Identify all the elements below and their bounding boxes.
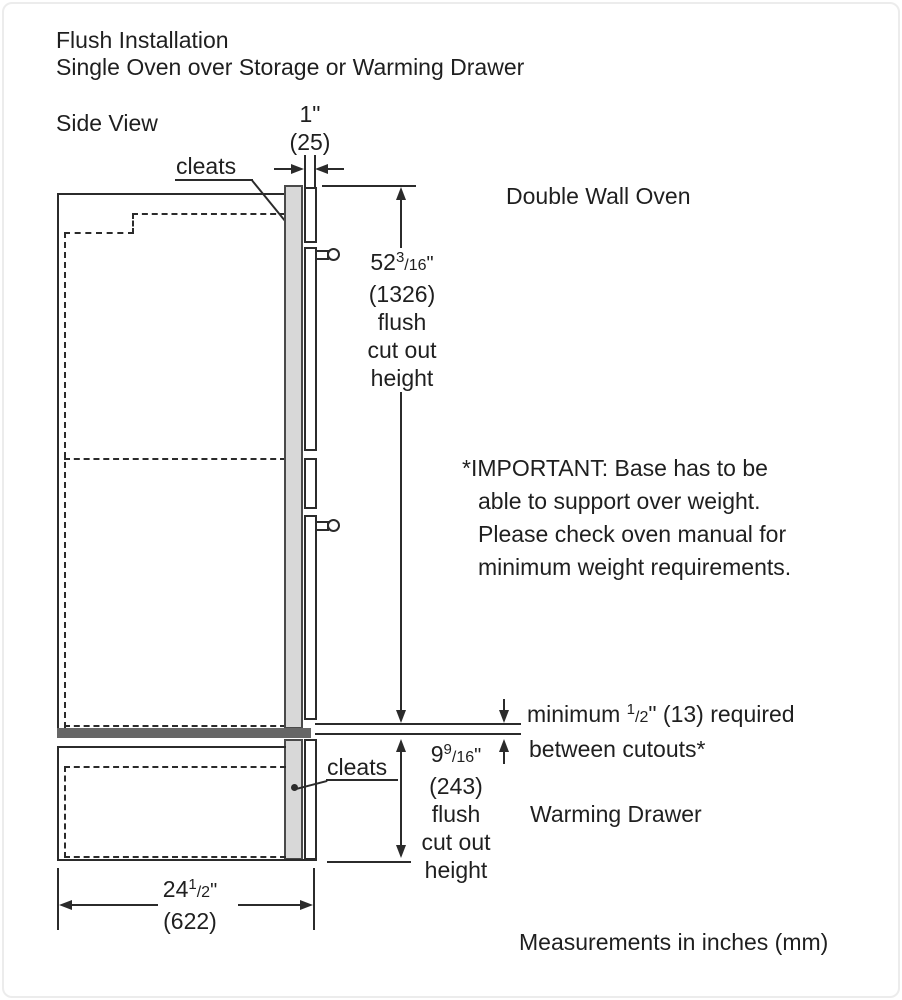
- overhang-tick-right: [314, 155, 316, 189]
- upper-dashed-top-left: [64, 232, 134, 234]
- drawer-label: Warming Drawer: [530, 801, 702, 827]
- upper-cabinet-top-line: [57, 193, 286, 195]
- divider-shelf-bar: [57, 728, 311, 738]
- oven-middle-trim: [304, 458, 317, 509]
- drawer-dim-shaft: [400, 748, 402, 848]
- drawer-dim-arrowhead-down: [396, 845, 406, 858]
- min-gap-arrowhead-down: [499, 710, 509, 723]
- drawer-front-panel: [304, 739, 317, 860]
- drawer-dashed-left: [64, 766, 66, 858]
- upper-dashed-bottom: [64, 725, 286, 727]
- upper-dashed-middle: [64, 458, 286, 460]
- min-gap-text-line2: between cutouts*: [529, 736, 705, 762]
- drawer-dim-desc1: flush: [408, 800, 504, 828]
- important-note: *IMPORTANT: Base has to be able to suppo…: [462, 452, 791, 584]
- cleats-label-bottom: cleats: [327, 754, 387, 780]
- oven-control-panel: [304, 187, 317, 243]
- cleats-label-top: cleats: [176, 153, 236, 179]
- upper-dashed-step: [132, 213, 134, 234]
- drawer-cabinet-bottom-line: [57, 859, 317, 861]
- drawer-dim-desc3: height: [408, 856, 504, 884]
- important-note-line2: able to support over weight.: [462, 485, 791, 518]
- oven-dim-text: 523/16" (1326) flush cut out height: [352, 248, 452, 392]
- oven-dim-desc2: cut out: [352, 336, 452, 364]
- width-dim-left-extension: [57, 868, 59, 930]
- drawer-dim-bottom-extension: [327, 861, 411, 863]
- gap-line-top: [315, 723, 521, 725]
- overhang-dim-mm: (25): [270, 129, 350, 155]
- drawer-cabinet-top-line: [57, 746, 286, 748]
- installation-diagram: Flush Installation Single Oven over Stor…: [0, 0, 902, 1000]
- oven-dim-inches: 523/16": [352, 248, 452, 280]
- cleats-bottom-underline: [326, 779, 398, 781]
- important-note-line1: *IMPORTANT: Base has to be: [462, 452, 791, 485]
- lower-door-handle-knob: [327, 519, 340, 532]
- drawer-dim-mm: (243): [408, 772, 504, 800]
- overhang-arrow-shaft-right: [326, 168, 344, 170]
- drawer-dim-inches: 99/16": [408, 740, 504, 772]
- overhang-dim-inches: 1": [270, 101, 350, 127]
- cleats-bottom-leader-dot: [291, 784, 298, 791]
- oven-dim-arrowhead-down: [396, 710, 406, 723]
- drawer-dim-text: 99/16" (243) flush cut out height: [408, 740, 504, 884]
- important-note-line3: Please check oven manual for: [462, 518, 791, 551]
- upper-dashed-top: [132, 213, 286, 215]
- upper-dashed-left: [64, 232, 66, 728]
- oven-dim-desc3: height: [352, 364, 452, 392]
- oven-label: Double Wall Oven: [506, 183, 691, 209]
- width-dim-inches: 241/2": [108, 876, 272, 906]
- page-title-line1: Flush Installation: [56, 27, 229, 53]
- width-dim-arrowhead-right: [300, 900, 313, 910]
- width-dim-right-extension: [313, 868, 315, 930]
- upper-cabinet-left-line: [57, 193, 59, 731]
- oven-dim-shaft-lower: [400, 392, 402, 712]
- drawer-dashed-top: [64, 766, 286, 768]
- cleats-top-underline: [175, 179, 253, 181]
- cleat-strip-lower: [284, 739, 303, 860]
- drawer-dashed-bottom: [64, 856, 286, 858]
- oven-upper-door: [304, 247, 317, 451]
- upper-door-handle-knob: [327, 248, 340, 261]
- oven-dim-shaft-upper: [400, 196, 402, 248]
- page-title-line2: Single Oven over Storage or Warming Draw…: [56, 54, 524, 80]
- oven-dim-mm: (1326): [352, 280, 452, 308]
- drawer-cabinet-left-line: [57, 746, 59, 861]
- oven-dim-desc1: flush: [352, 308, 452, 336]
- important-note-line4: minimum weight requirements.: [462, 551, 791, 584]
- drawer-dim-desc2: cut out: [408, 828, 504, 856]
- min-gap-text-line1: minimum 1/2" (13) required: [527, 701, 795, 731]
- view-label: Side View: [56, 110, 158, 136]
- width-dim-mm: (622): [108, 908, 272, 934]
- footer-note: Measurements in inches (mm): [519, 929, 828, 955]
- cleat-strip-upper: [284, 185, 303, 729]
- overhang-arrowhead-right: [291, 164, 304, 174]
- gap-line-bottom: [315, 733, 521, 735]
- oven-lower-door: [304, 515, 317, 720]
- overhang-tick-left: [304, 155, 306, 189]
